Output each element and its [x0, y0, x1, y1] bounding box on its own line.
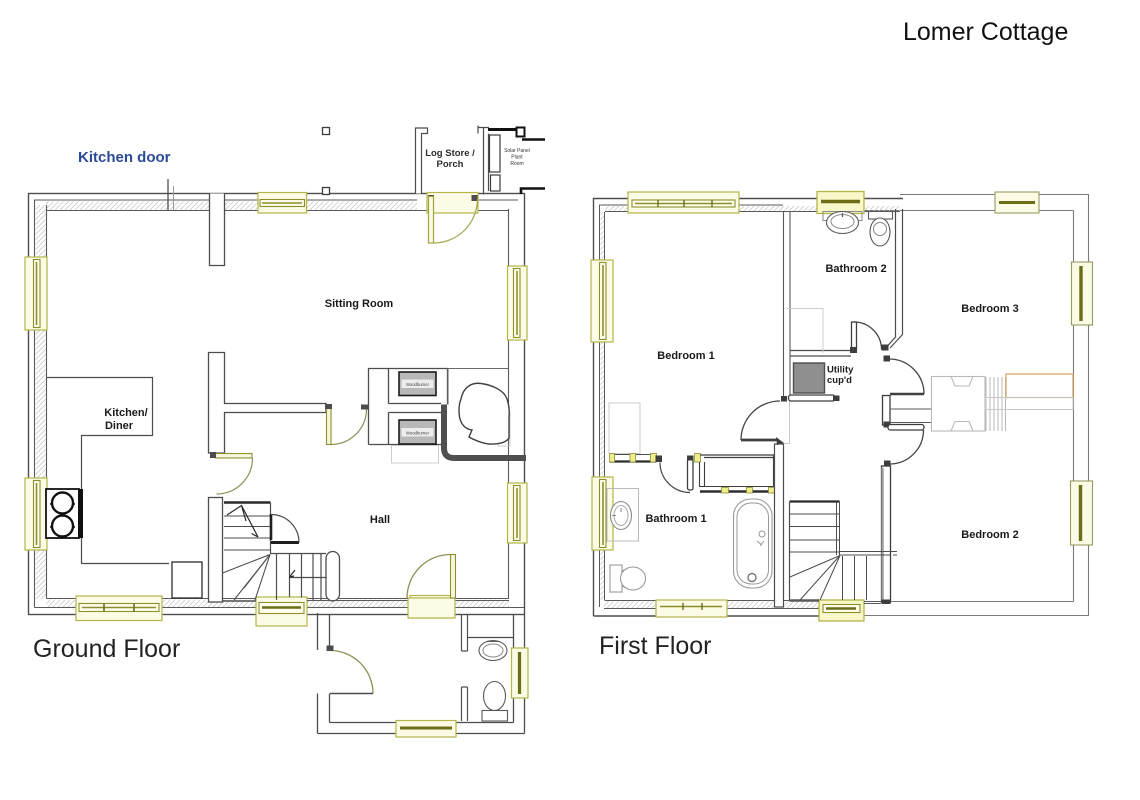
svg-text:Plant: Plant — [511, 155, 523, 161]
svg-text:Room: Room — [510, 161, 523, 167]
svg-text:Ground Floor: Ground Floor — [33, 635, 180, 663]
svg-text:Utility: Utility — [827, 365, 854, 376]
svg-text:Bathroom 1: Bathroom 1 — [645, 513, 706, 525]
svg-text:Bedroom 3: Bedroom 3 — [961, 303, 1018, 315]
svg-text:Woodburner: Woodburner — [406, 431, 430, 436]
svg-text:Kitchen/: Kitchen/ — [104, 407, 147, 419]
svg-text:Woodburner: Woodburner — [406, 382, 430, 387]
svg-text:Sitting Room: Sitting Room — [325, 298, 394, 310]
svg-text:Solar Panel: Solar Panel — [504, 148, 530, 154]
svg-text:Bedroom 1: Bedroom 1 — [657, 350, 714, 362]
svg-text:First Floor: First Floor — [599, 632, 712, 660]
svg-text:Diner: Diner — [105, 420, 134, 432]
svg-text:Bathroom 2: Bathroom 2 — [825, 263, 886, 275]
svg-text:Porch: Porch — [437, 159, 464, 170]
svg-text:Kitchen door: Kitchen door — [78, 149, 171, 166]
svg-text:Bedroom 2: Bedroom 2 — [961, 529, 1018, 541]
svg-text:cup'd: cup'd — [827, 375, 852, 386]
svg-text:Lomer Cottage: Lomer Cottage — [903, 18, 1068, 46]
svg-text:Hall: Hall — [370, 514, 390, 526]
svg-text:Log Store /: Log Store / — [425, 148, 475, 159]
